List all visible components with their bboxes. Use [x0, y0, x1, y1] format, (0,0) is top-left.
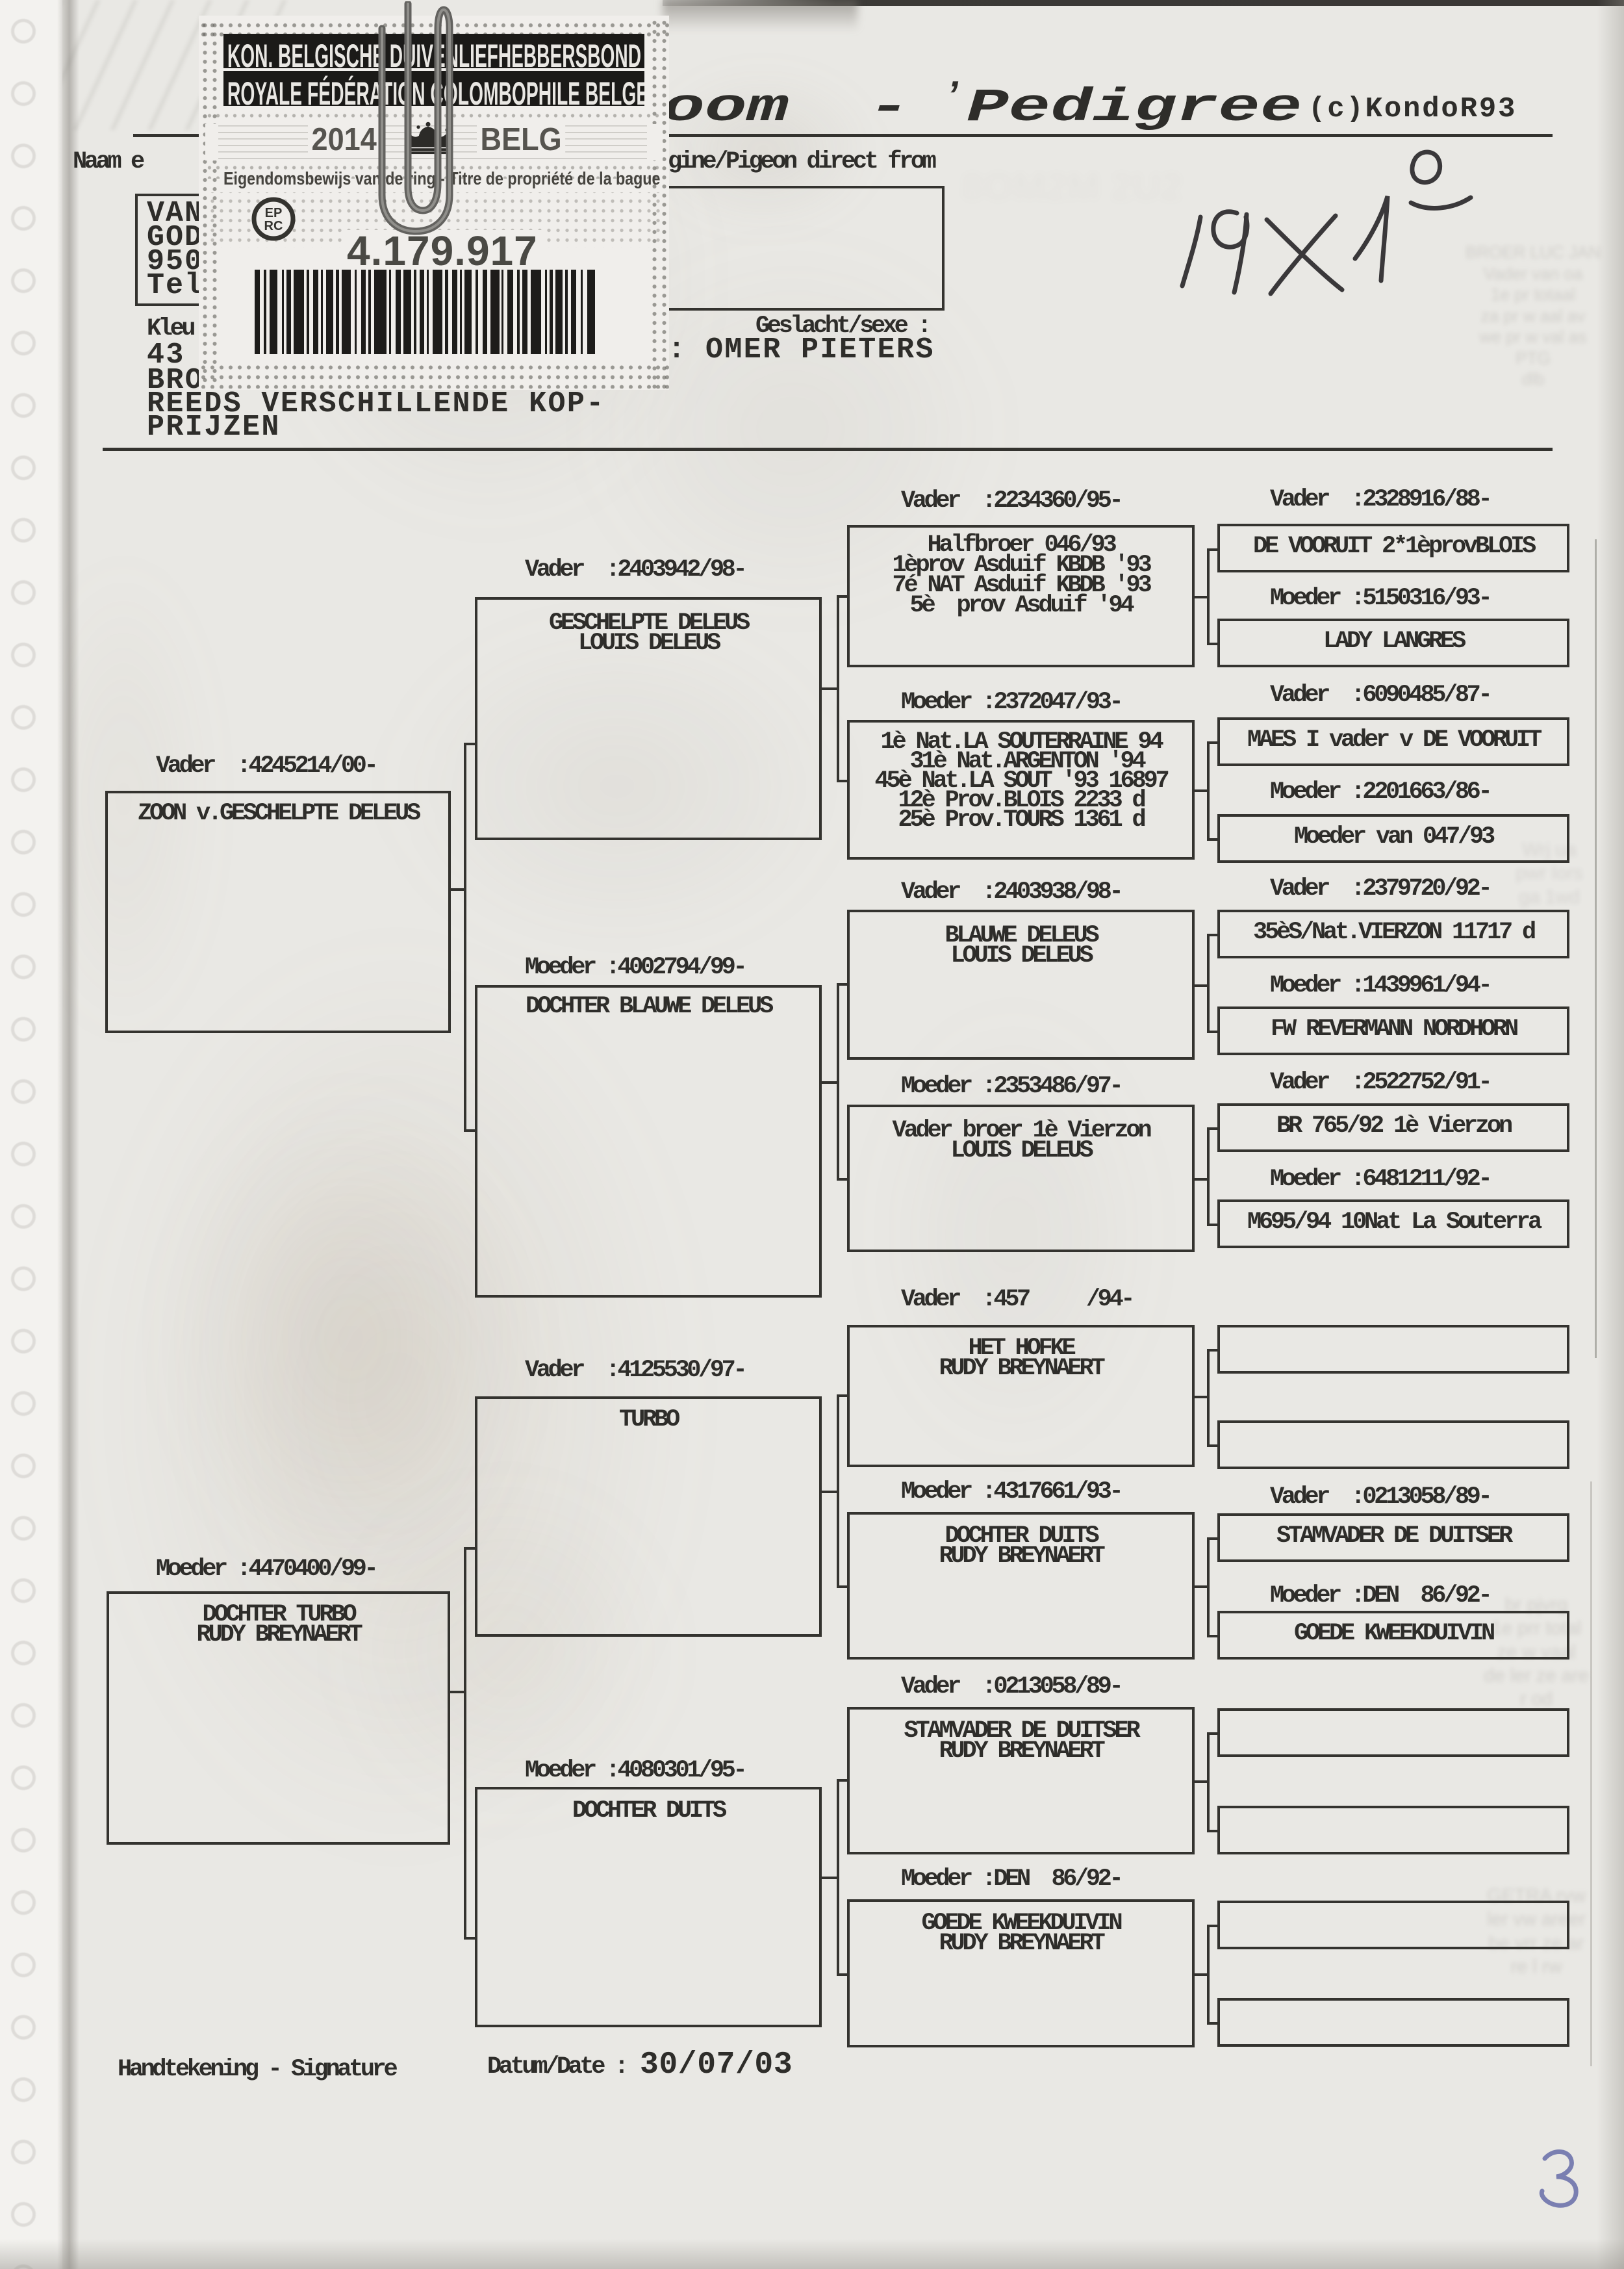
- svg-text:EP: EP: [265, 206, 283, 220]
- svg-text:RC: RC: [264, 219, 283, 233]
